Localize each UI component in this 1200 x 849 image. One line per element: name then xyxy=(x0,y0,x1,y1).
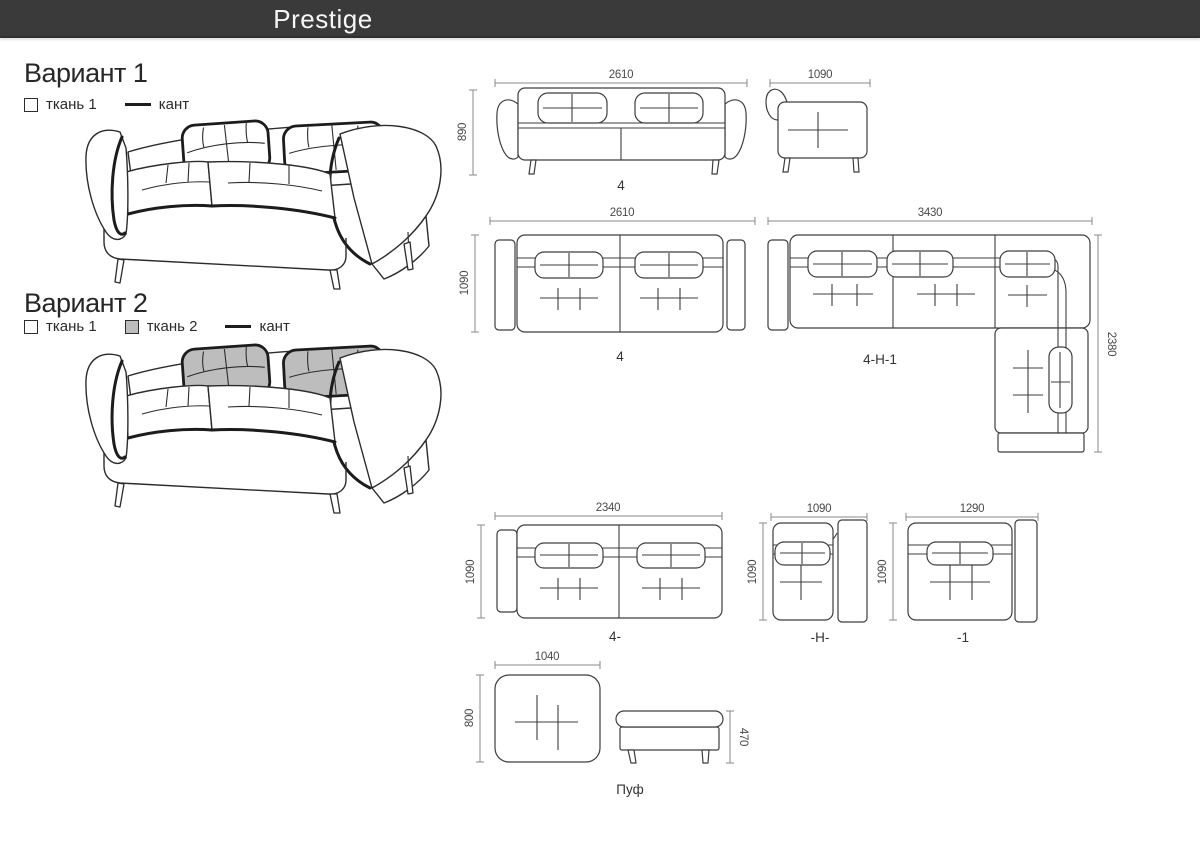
plan-corner-drawing: 3430 2380 4-Н-1 xyxy=(740,198,1135,476)
plan4-depth-dim: 1090 xyxy=(459,271,471,295)
plan-4-drawing: 2610 1090 4 xyxy=(455,198,765,370)
fabric2-swatch xyxy=(125,320,139,334)
plan-h-drawing: 1090 1090 -Н- xyxy=(745,495,885,655)
side-view-drawing: 1090 xyxy=(755,60,880,180)
plan-1-drawing: 1290 1090 -1 xyxy=(875,495,1060,655)
plan-1-label: -1 xyxy=(957,630,969,645)
fabric1-swatch xyxy=(24,98,38,112)
front-width-dim: 2610 xyxy=(609,69,633,81)
variant2-title: Вариант 2 xyxy=(24,288,147,319)
corner-width-dim: 3430 xyxy=(918,207,942,219)
front-height-dim: 890 xyxy=(457,123,469,141)
variant1-title: Вариант 1 xyxy=(24,58,147,89)
sofa-variant1-illustration xyxy=(42,112,462,290)
plan4open-depth-dim: 1090 xyxy=(465,560,477,584)
sofa-variant2-illustration xyxy=(42,336,462,514)
pouf-width-dim: 1040 xyxy=(535,651,559,663)
plan1-depth-dim: 1090 xyxy=(877,560,889,584)
edging-label: кант xyxy=(259,318,289,335)
planh-depth-dim: 1090 xyxy=(747,560,759,584)
pouf-label: Пуф xyxy=(616,782,643,797)
variant2-legend: ткань 1 ткань 2 кант xyxy=(24,318,290,335)
edging-swatch xyxy=(225,325,251,328)
side-width-dim: 1090 xyxy=(808,69,832,81)
page-title: Prestige xyxy=(273,4,372,35)
plan-4-open-label: 4- xyxy=(609,629,621,644)
edging-label: кант xyxy=(159,96,189,113)
front-view-drawing: 2610 890 4 xyxy=(455,60,765,200)
front-view-label: 4 xyxy=(617,178,625,193)
fabric2-label: ткань 2 xyxy=(147,318,198,335)
pouf-drawing: 1040 800 470 Пуф xyxy=(450,645,780,805)
plan4open-width-dim: 2340 xyxy=(596,502,620,514)
variant1-legend: ткань 1 кант xyxy=(24,96,189,113)
plan1-width-dim: 1290 xyxy=(960,503,984,515)
corner-depth-dim: 2380 xyxy=(1105,332,1117,356)
fabric1-label: ткань 1 xyxy=(46,96,97,113)
page-header: Prestige xyxy=(0,0,1200,38)
fabric1-label: ткань 1 xyxy=(46,318,97,335)
planh-width-dim: 1090 xyxy=(807,503,831,515)
plan-4-open-drawing: 2340 1090 4- xyxy=(455,495,765,655)
edging-swatch xyxy=(125,103,151,106)
pouf-height-dim: 470 xyxy=(737,728,749,746)
plan-corner-label: 4-Н-1 xyxy=(863,352,897,367)
pouf-depth-dim: 800 xyxy=(464,709,476,727)
plan4-width-dim: 2610 xyxy=(610,207,634,219)
plan-4-label: 4 xyxy=(616,349,624,364)
fabric1-swatch xyxy=(24,320,38,334)
catalog-page: Prestige Вариант 1 ткань 1 кант Вариант … xyxy=(0,0,1200,849)
plan-h-label: -Н- xyxy=(811,630,830,645)
